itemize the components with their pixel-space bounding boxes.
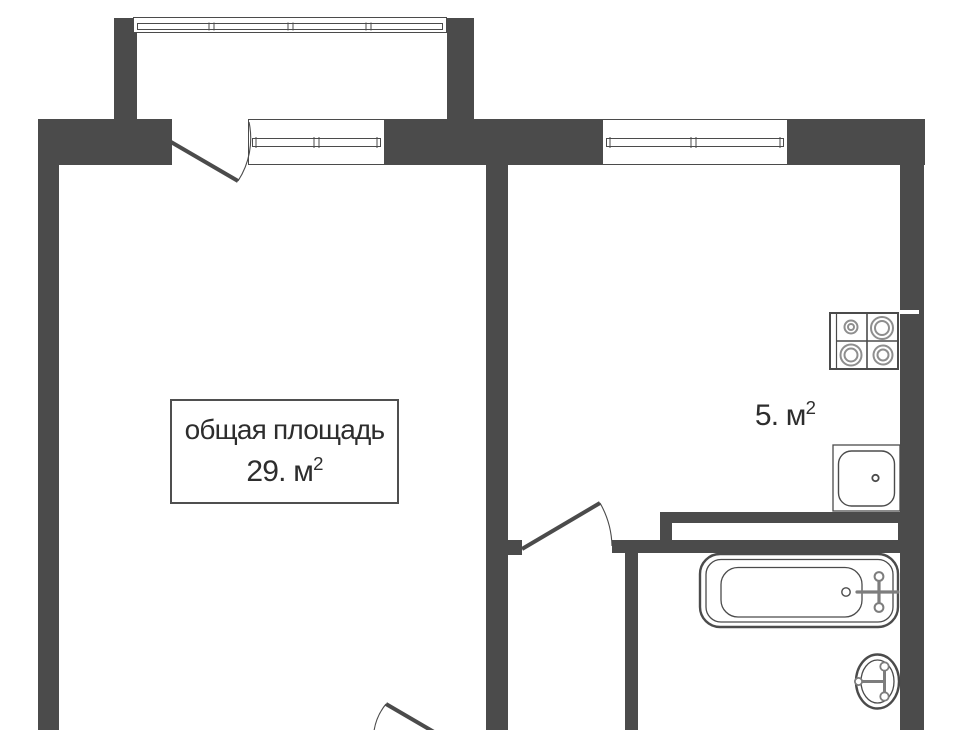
entry-door-arc [374,704,386,730]
plan-vector-layer [0,0,960,730]
hall-kitchen-door-icon [522,503,612,549]
floor-plan: общая площадь 29. м2 5. м2 [0,0,960,730]
balcony-window-glazing [138,23,443,31]
balcony-door-arc [238,122,251,181]
washbasin-icon [855,655,899,709]
sink-drain [872,475,878,481]
hall-door-leaf [522,503,600,549]
bathtub-icon [700,554,898,627]
balcony-door-icon [171,122,251,181]
entry-door-icon [374,704,434,730]
living-room-window-glazing [253,137,381,148]
kitchen-sink-icon [833,445,900,511]
stove-icon [830,313,898,369]
balcony-door-leaf [171,142,238,181]
hall-door-arc [600,503,612,546]
entry-door-leaf [386,704,434,730]
kitchen-window-glazing [607,137,784,148]
